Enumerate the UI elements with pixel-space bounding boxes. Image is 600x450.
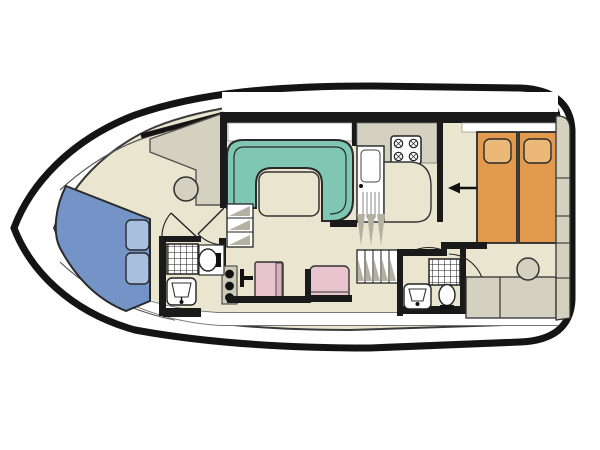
saloon-step-wall bbox=[330, 220, 357, 227]
aft-bath-wall-top bbox=[397, 249, 447, 256]
aft-bottom-cabinets bbox=[466, 277, 556, 318]
sink-unit bbox=[357, 146, 384, 222]
mid-cabin-bottom-wall bbox=[227, 296, 311, 303]
fwd-bath-wall-bottom bbox=[163, 308, 201, 317]
galley-aft-wall bbox=[437, 112, 443, 222]
cabin-top-wall bbox=[222, 112, 560, 123]
aft-toilet bbox=[439, 285, 455, 311]
aft-pillow-left bbox=[484, 139, 511, 163]
mid-cabin-nook-wall-v bbox=[305, 269, 311, 303]
knob-1 bbox=[225, 270, 234, 279]
mid-berth-left bbox=[255, 262, 283, 298]
mid-berth-right bbox=[310, 266, 349, 299]
fwd-bath-wall-left bbox=[159, 236, 166, 316]
bow-pillow-top bbox=[126, 220, 149, 250]
aft-washbasin bbox=[404, 284, 431, 309]
helm-seat bbox=[174, 177, 198, 201]
saloon-galley-wall bbox=[352, 115, 357, 146]
dinette-table bbox=[259, 172, 319, 216]
stove bbox=[391, 136, 421, 164]
aft-bath-wall-left bbox=[397, 249, 403, 316]
aft-side-lockers bbox=[556, 116, 570, 320]
fwd-washbasin bbox=[167, 278, 196, 305]
aft-stool bbox=[517, 258, 539, 280]
top-side-deck bbox=[222, 92, 558, 112]
forward-companionway-steps bbox=[227, 204, 253, 247]
aft-shower bbox=[429, 259, 460, 285]
bow-pillow-bottom bbox=[126, 253, 149, 284]
fwd-toilet bbox=[199, 245, 224, 275]
helm-saloon-wall bbox=[220, 112, 227, 208]
saloon-window-strip bbox=[228, 123, 352, 141]
fwd-shower bbox=[167, 244, 198, 274]
knob-2 bbox=[225, 282, 234, 291]
aft-pillow-right bbox=[524, 139, 551, 163]
galley-counter bbox=[384, 162, 431, 222]
fwd-bath-wall-top bbox=[159, 236, 201, 242]
mid-cabin-nook-wall-h bbox=[311, 295, 352, 302]
boat-floorplan bbox=[0, 0, 600, 450]
aft-window-strip bbox=[462, 123, 557, 132]
